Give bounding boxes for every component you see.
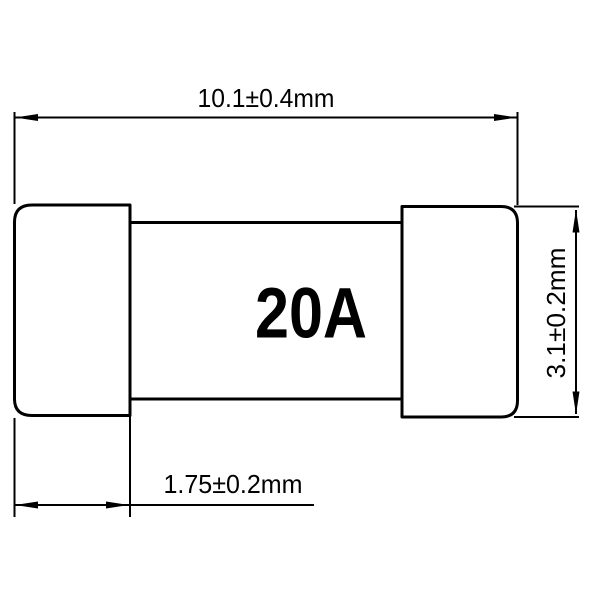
dimension-cap-width: 1.75±0.2mm bbox=[15, 416, 315, 517]
fuse-technical-drawing: 20A 10.1±0.4mm 3.1±0.2mm 1.75 bbox=[0, 0, 600, 600]
cap-width-dimension-label: 1.75±0.2mm bbox=[164, 469, 303, 499]
cap-width-arrowhead-left bbox=[15, 502, 38, 509]
length-arrowhead-left bbox=[15, 114, 38, 121]
fuse-rating-label: 20A bbox=[255, 275, 367, 354]
fuse-outline: 20A bbox=[15, 205, 518, 417]
length-arrowhead-right bbox=[494, 114, 517, 121]
dimension-body-height: 3.1±0.2mm bbox=[514, 207, 580, 418]
drawing-svg: 20A 10.1±0.4mm 3.1±0.2mm 1.75 bbox=[0, 0, 600, 600]
height-arrowhead-top bbox=[573, 210, 580, 233]
fuse-right-cap bbox=[402, 207, 518, 418]
fuse-left-cap bbox=[15, 205, 131, 416]
length-dimension-label: 10.1±0.4mm bbox=[198, 83, 335, 113]
dimension-overall-length: 10.1±0.4mm bbox=[15, 83, 518, 205]
cap-width-arrowhead-right bbox=[106, 502, 129, 509]
height-arrowhead-bottom bbox=[573, 392, 580, 415]
height-dimension-label: 3.1±0.2mm bbox=[541, 248, 571, 379]
